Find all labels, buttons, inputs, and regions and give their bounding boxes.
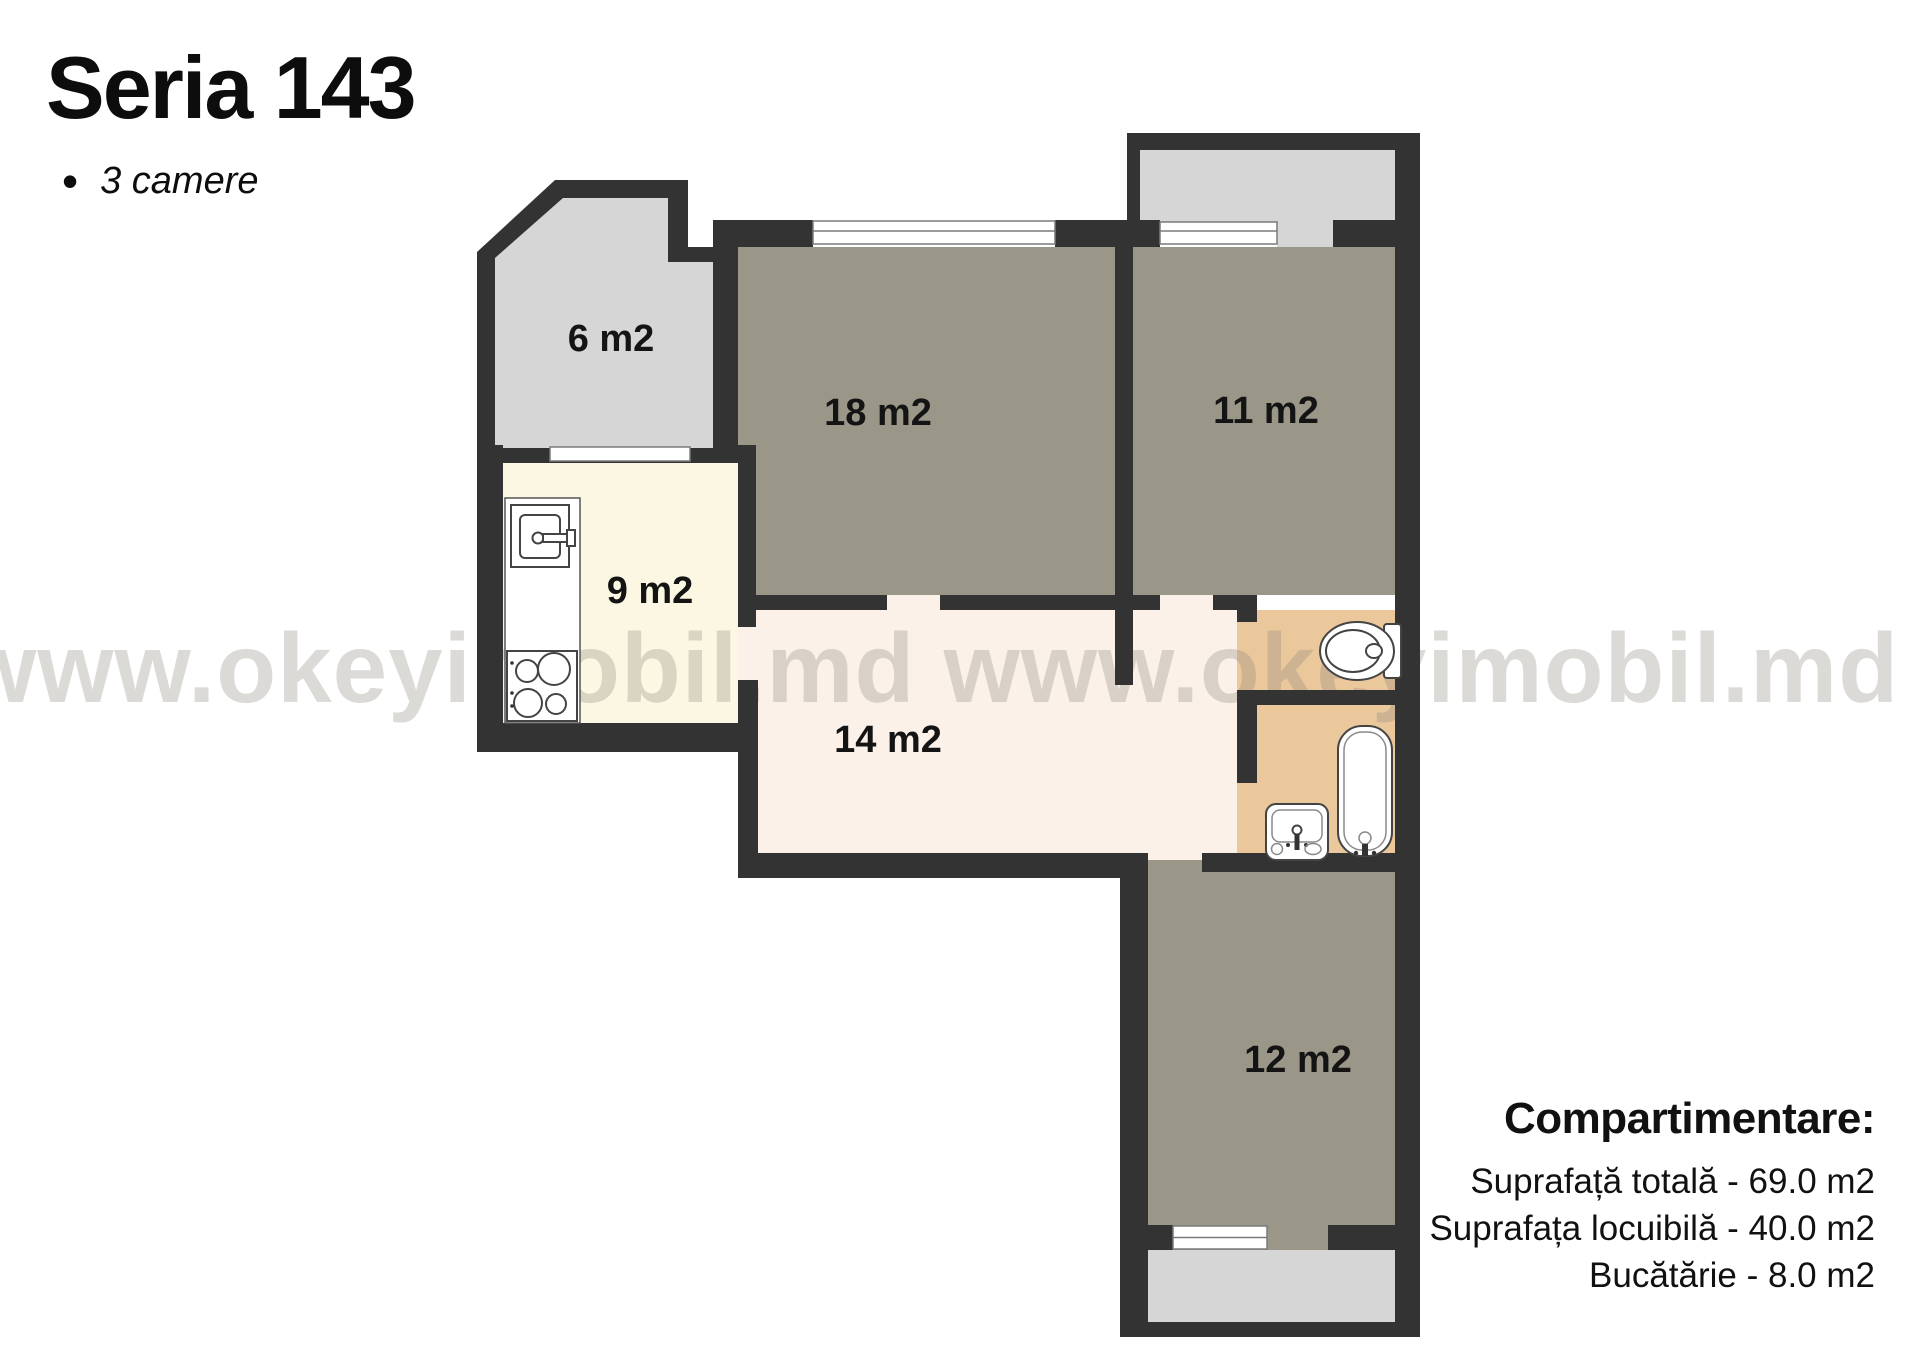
kitchen-balcony-window <box>550 447 690 461</box>
wall-segment <box>1115 247 1133 685</box>
living-room-window <box>813 221 1055 244</box>
kitchen-sink-icon <box>511 505 575 567</box>
wall-segment <box>738 595 887 610</box>
bedroom-right-door-gap <box>1160 595 1213 610</box>
wall-segment <box>940 595 1115 610</box>
wall-segment <box>1237 595 1257 622</box>
wall-segment <box>738 445 756 627</box>
legend-living-area: Suprafața locuibilă - 40.0 m2 <box>1429 1205 1875 1252</box>
wall-segment <box>738 680 758 878</box>
living-room-door-gap <box>887 595 940 610</box>
bedroom-right-balcony-window <box>1160 222 1277 244</box>
legend-kitchen-area: Bucătărie - 8.0 m2 <box>1429 1252 1875 1299</box>
balcony-top-right-door-gap <box>1277 220 1333 247</box>
wall-segment <box>1120 853 1148 1337</box>
wall-segment <box>713 222 738 462</box>
wall-segment <box>1127 133 1420 150</box>
floor-plan-page: Seria 143 • 3 camere www.okeyimobil.m <box>0 0 1920 1358</box>
wall-segment <box>713 220 813 247</box>
balcony-bottom-floor <box>1148 1250 1395 1322</box>
watermark: www.okeyimobil.md www.okeyimobil.md <box>0 613 1899 723</box>
bedroom-right-label: 11 m2 <box>1213 390 1319 432</box>
legend-heading: Compartimentare: <box>1429 1094 1875 1144</box>
wall-segment <box>1328 1225 1395 1250</box>
wall-segment <box>1133 595 1160 610</box>
hallway-label: 14 m2 <box>834 719 942 761</box>
stove-icon <box>507 651 577 721</box>
wall-segment <box>1120 1322 1420 1337</box>
kitchen-label: 9 m2 <box>607 570 694 612</box>
wall-segment <box>477 723 758 752</box>
living-room-label: 18 m2 <box>824 392 932 434</box>
legend-total-area: Suprafață totală - 69.0 m2 <box>1429 1158 1875 1205</box>
balcony-top-right-floor <box>1140 150 1395 223</box>
legend: Compartimentare: Suprafață totală - 69.0… <box>1429 1094 1875 1299</box>
wall-segment <box>1127 133 1140 245</box>
balcony-top-left-label: 6 m2 <box>568 318 655 360</box>
bedroom-bottom-label: 12 m2 <box>1244 1039 1352 1081</box>
bedroom-bottom-window <box>1173 1226 1267 1249</box>
wall-segment <box>738 853 1133 878</box>
bathroom-sink-icon <box>1266 804 1328 860</box>
wall-segment <box>1213 595 1240 610</box>
toilet-icon <box>1320 622 1401 680</box>
bathtub-icon <box>1338 726 1392 856</box>
wall-segment <box>1148 1225 1173 1250</box>
wall-segment <box>1395 150 1420 1337</box>
wall-segment <box>1055 220 1160 247</box>
bathroom-door-gap <box>1237 783 1257 853</box>
wall-segment <box>668 198 688 247</box>
wall-segment <box>477 445 503 752</box>
wall-segment <box>1237 690 1395 705</box>
